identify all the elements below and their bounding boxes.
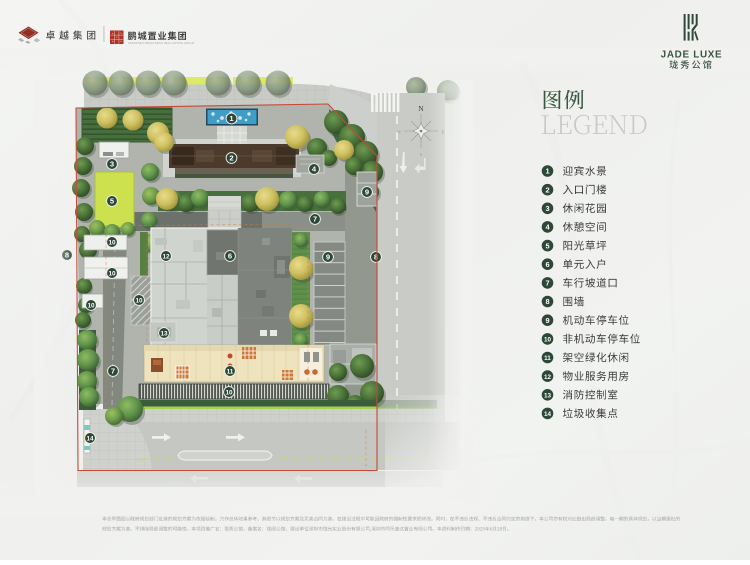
svg-text:SHENZHEN PENGCHENG REAL ESTATE: SHENZHEN PENGCHENG REAL ESTATE GROUP (128, 42, 195, 45)
svg-text:2: 2 (229, 154, 233, 163)
svg-text:1: 1 (545, 167, 549, 176)
svg-text:12: 12 (544, 374, 552, 381)
svg-text:10: 10 (225, 390, 233, 397)
svg-text:9: 9 (545, 316, 549, 325)
svg-text:7: 7 (545, 279, 549, 288)
svg-text:10: 10 (108, 240, 116, 247)
svg-text:11: 11 (227, 369, 234, 376)
svg-text:10: 10 (87, 303, 95, 310)
svg-text:13: 13 (160, 331, 168, 338)
svg-text:6: 6 (545, 260, 549, 269)
svg-text:S: S (420, 152, 423, 157)
svg-text:7: 7 (313, 215, 317, 224)
svg-text:W: W (397, 130, 402, 135)
svg-text:9: 9 (365, 188, 369, 197)
svg-text:7: 7 (111, 367, 115, 376)
svg-text:2: 2 (545, 185, 549, 194)
svg-text:12: 12 (162, 254, 170, 261)
svg-text:10: 10 (108, 271, 116, 278)
svg-text:8: 8 (545, 297, 549, 306)
svg-text:13: 13 (544, 393, 552, 400)
svg-text:10: 10 (135, 298, 143, 305)
svg-text:3: 3 (545, 204, 549, 213)
svg-text:14: 14 (544, 411, 552, 418)
svg-text:5: 5 (545, 241, 549, 250)
svg-text:N: N (418, 104, 424, 113)
svg-text:14: 14 (86, 436, 94, 443)
svg-text:JADE LUXE: JADE LUXE (661, 50, 723, 61)
svg-text:11: 11 (544, 355, 551, 362)
svg-text:6: 6 (228, 252, 232, 261)
svg-text:3: 3 (110, 160, 114, 169)
svg-text:9: 9 (326, 253, 330, 262)
svg-text:10: 10 (544, 337, 552, 344)
svg-text:E: E (442, 130, 445, 135)
